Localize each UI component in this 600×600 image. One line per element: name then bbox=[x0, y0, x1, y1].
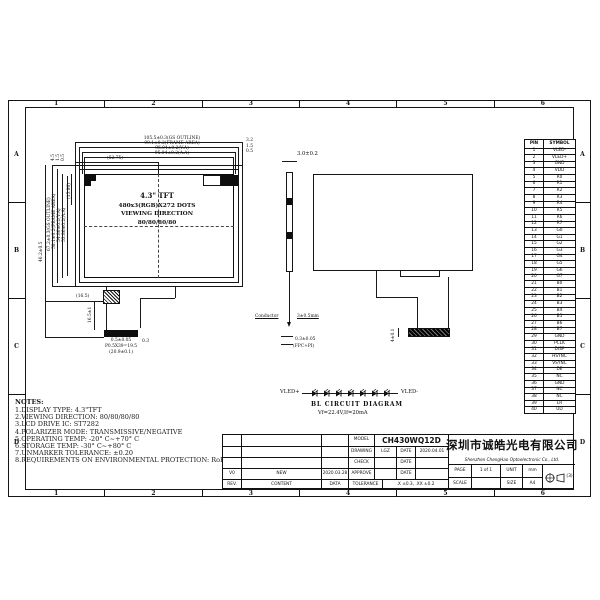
fpc-connector-front bbox=[104, 330, 138, 337]
rev-cell bbox=[241, 457, 321, 468]
pin-row: 6R1 bbox=[525, 181, 575, 188]
unit-label: UNIT bbox=[500, 464, 522, 477]
approve-date-value bbox=[415, 468, 448, 479]
side-view-outline bbox=[286, 172, 293, 272]
fpc-edge bbox=[376, 297, 417, 298]
check-value bbox=[374, 457, 396, 468]
witness-line bbox=[233, 157, 234, 174]
pin-symbol: VLED- bbox=[544, 149, 575, 155]
pin-row: 16G3 bbox=[525, 247, 575, 254]
dim-line bbox=[281, 344, 293, 345]
pin-row: 30PCLK bbox=[525, 340, 575, 347]
zone-label: A bbox=[8, 107, 25, 203]
pin-number: 17 bbox=[525, 255, 544, 261]
zone-numbers-top: 123456 bbox=[8, 100, 591, 107]
dim-total-height: 46.2±0.5 bbox=[40, 242, 44, 262]
pin-row: 9R4 bbox=[525, 201, 575, 208]
date-label: DATE bbox=[396, 446, 415, 457]
pin-row: 35NC bbox=[525, 373, 575, 380]
pin-row: 11R6 bbox=[525, 214, 575, 221]
scale-value bbox=[471, 477, 500, 490]
pin-row: 33VSYNC bbox=[525, 360, 575, 367]
pin-symbol: NC bbox=[544, 374, 575, 380]
zone-label: 6 bbox=[495, 100, 591, 107]
witness-line bbox=[84, 157, 85, 174]
rev-cell bbox=[321, 435, 348, 446]
fold-length-label: 3±0.5mm bbox=[297, 315, 319, 319]
dim-fpc-offset: (16.5) bbox=[76, 295, 89, 299]
tolerance-value: .X ±0.3, .XX ±0.2 bbox=[382, 479, 448, 490]
dim-center-offset: (52.75) bbox=[107, 157, 123, 161]
pin-row: 1VLED- bbox=[525, 148, 575, 155]
scale-label: SCALE bbox=[448, 477, 471, 490]
pin-row: 24B3 bbox=[525, 300, 575, 307]
zone-label: C bbox=[574, 299, 591, 395]
pin-row: 38NC bbox=[525, 393, 575, 400]
pin-number: 35 bbox=[525, 374, 544, 380]
led-icon bbox=[370, 389, 381, 399]
pin-symbol: B0 bbox=[544, 281, 575, 287]
pin-symbol: B5 bbox=[544, 315, 575, 321]
pin-number: 12 bbox=[525, 222, 544, 228]
pin-row: 29GND bbox=[525, 333, 575, 340]
pin-symbol: LR bbox=[544, 401, 575, 407]
pin-number: 18 bbox=[525, 261, 544, 267]
rev-cell bbox=[321, 457, 348, 468]
pin-row: 34DE bbox=[525, 367, 575, 374]
model-value: CH430WQ12D bbox=[374, 435, 448, 446]
dim-fpc-length: 16.5±1 bbox=[89, 307, 93, 323]
size-value: A4 bbox=[522, 477, 542, 490]
witness-line bbox=[75, 142, 76, 165]
witness-line bbox=[235, 152, 236, 174]
pin-row: 2VLED+ bbox=[525, 154, 575, 161]
pin-row: 17G4 bbox=[525, 254, 575, 261]
rev-cell bbox=[223, 457, 241, 468]
dim-aa-width: 95.04±0.2(A.A) bbox=[155, 152, 189, 156]
drawing-label: DRAWING bbox=[348, 446, 374, 457]
unit-value: mm bbox=[522, 464, 542, 477]
pin-row: 36GND bbox=[525, 380, 575, 387]
witness-line bbox=[158, 162, 159, 174]
pin-number: 13 bbox=[525, 228, 544, 234]
witness-line bbox=[82, 152, 83, 174]
pin-symbol: B3 bbox=[544, 301, 575, 307]
pin-number: 25 bbox=[525, 308, 544, 314]
data-header-label: DATA bbox=[321, 479, 348, 490]
rev-content: NEW bbox=[241, 468, 321, 479]
pin-number: 19 bbox=[525, 268, 544, 274]
pin-number: 6 bbox=[525, 182, 544, 188]
pin-row: 15G2 bbox=[525, 240, 575, 247]
zone-label: 1 bbox=[8, 490, 105, 497]
zone-label: 4 bbox=[300, 490, 397, 497]
third-angle-projection-icon bbox=[545, 472, 565, 484]
fpc-edge bbox=[448, 277, 449, 328]
pin-number: 39 bbox=[525, 401, 544, 407]
rev-cell bbox=[241, 435, 321, 446]
dim-thickness: 3.0±0.2 bbox=[297, 152, 318, 157]
pin-number: 24 bbox=[525, 301, 544, 307]
pin-symbol: R3 bbox=[544, 195, 575, 201]
pin-symbol: B7 bbox=[544, 328, 575, 334]
fpc-edge bbox=[417, 297, 418, 328]
dim-inner-offset: (15.80) bbox=[68, 183, 72, 199]
pin-symbol: R0 bbox=[544, 175, 575, 181]
pin-symbol: NC bbox=[544, 388, 575, 394]
dim-line bbox=[398, 328, 399, 337]
pin-number: 4 bbox=[525, 168, 544, 174]
rear-fpc-exit bbox=[400, 270, 440, 277]
zone-label: 1 bbox=[8, 100, 105, 107]
pin-row: 14G1 bbox=[525, 234, 575, 241]
rev-cell bbox=[223, 446, 241, 457]
pin-symbol: G5 bbox=[544, 261, 575, 267]
pin-symbol: GND bbox=[544, 381, 575, 387]
led-icon bbox=[310, 389, 321, 399]
pin-symbol: VLED+ bbox=[544, 155, 575, 161]
pin-symbol: G6 bbox=[544, 268, 575, 274]
rev-version: V0 bbox=[223, 468, 241, 479]
pin-row: 27B6 bbox=[525, 320, 575, 327]
zone-label: B bbox=[574, 203, 591, 299]
pin-row: 12R7 bbox=[525, 221, 575, 228]
pin-symbol: B6 bbox=[544, 321, 575, 327]
dim-line bbox=[45, 301, 106, 302]
drawing-value: LGZ bbox=[374, 446, 396, 457]
pin-number: 14 bbox=[525, 235, 544, 241]
dim-connector-height: 4±0.1 bbox=[392, 329, 396, 342]
side-fpc-line bbox=[289, 272, 290, 322]
side-tape-mark bbox=[287, 198, 292, 205]
pin-symbol: G2 bbox=[544, 241, 575, 247]
pin-row: 21B0 bbox=[525, 280, 575, 287]
pin-symbol: R6 bbox=[544, 215, 575, 221]
led-icon bbox=[334, 389, 345, 399]
pin-row: 39LR bbox=[525, 400, 575, 407]
rev-cell bbox=[321, 446, 348, 457]
pin-symbol: B4 bbox=[544, 308, 575, 314]
led-icon bbox=[382, 389, 393, 399]
led-icon bbox=[358, 389, 369, 399]
pin-row: 3GND bbox=[525, 161, 575, 168]
dim-edge-gap-1: 3.2 bbox=[246, 139, 253, 143]
pin-symbol: R1 bbox=[544, 182, 575, 188]
dim-pin-pitch: P0.5X39=19.5 bbox=[105, 345, 137, 349]
pin-symbol: UD bbox=[544, 407, 575, 413]
pin-number: 3 bbox=[525, 162, 544, 168]
fpc-edge bbox=[175, 287, 176, 298]
pin-number: 7 bbox=[525, 188, 544, 194]
zone-label: 2 bbox=[105, 490, 202, 497]
model-label: MODEL bbox=[348, 435, 374, 446]
page-value: 1 of 1 bbox=[471, 464, 500, 477]
label-box-top-right bbox=[203, 175, 221, 186]
zone-label: 5 bbox=[397, 490, 494, 497]
pin-header: PIN bbox=[525, 140, 544, 148]
pin-number: 15 bbox=[525, 241, 544, 247]
driver-ic-block bbox=[103, 290, 120, 304]
pin-number: 21 bbox=[525, 281, 544, 287]
pin-symbol: R2 bbox=[544, 188, 575, 194]
pin-number: 20 bbox=[525, 275, 544, 281]
dim-connector-width: (20.9±0.1) bbox=[109, 351, 133, 355]
pin-row: 25B4 bbox=[525, 307, 575, 314]
corner-mark-top-right bbox=[221, 175, 238, 186]
zone-label: 5 bbox=[397, 100, 494, 107]
pin-symbol: PCLK bbox=[544, 341, 575, 347]
pin-number: 28 bbox=[525, 328, 544, 334]
pin-row: 22B1 bbox=[525, 287, 575, 294]
pin-symbol: VDD bbox=[544, 168, 575, 174]
pin-row: 4VDD bbox=[525, 167, 575, 174]
pin-symbol: GND bbox=[544, 334, 575, 340]
zone-label: A bbox=[574, 107, 591, 203]
notes-title: NOTES: bbox=[15, 399, 44, 406]
pin-number: 36 bbox=[525, 381, 544, 387]
tolerance-label: TOLERANCE bbox=[348, 479, 382, 490]
pin-row: 28B7 bbox=[525, 327, 575, 334]
pin-row: 18G5 bbox=[525, 260, 575, 267]
zone-numbers-bottom: 123456 bbox=[8, 490, 591, 497]
pin-number: 16 bbox=[525, 248, 544, 254]
pin-row: 19G6 bbox=[525, 267, 575, 274]
note-item: 8.REQUIREMENTS ON ENVIRONMENTAL PROTECTI… bbox=[15, 457, 230, 464]
witness-line bbox=[45, 337, 104, 338]
conductor-label: Conductor bbox=[255, 315, 278, 319]
rev-cell bbox=[241, 446, 321, 457]
pin-number: 1 bbox=[525, 149, 544, 155]
date-label: DATE bbox=[396, 457, 415, 468]
pin-row: 5R0 bbox=[525, 174, 575, 181]
title-block: V0 NEW 2020.03.28 REV. CONTENT DATA MODE… bbox=[222, 434, 574, 489]
pin-number: 9 bbox=[525, 202, 544, 208]
fpc-edge bbox=[140, 298, 141, 328]
pin-row: 23B2 bbox=[525, 294, 575, 301]
display-text-block: 4.3" TFT 480x3(RGB)X272 DOTS VIEWING DIR… bbox=[84, 191, 230, 228]
witness-line bbox=[238, 147, 239, 169]
side-tape-mark bbox=[287, 232, 292, 239]
pin-number: 29 bbox=[525, 334, 544, 340]
pin-number: 11 bbox=[525, 215, 544, 221]
dim-aa-height: 53.86±0.2(A.A) bbox=[63, 208, 67, 242]
pin-number: 31 bbox=[525, 348, 544, 354]
witness-line bbox=[242, 142, 243, 165]
pin-row: 32HSYNC bbox=[525, 353, 575, 360]
company-name-cn: 深圳市诚皓光电有限公司 bbox=[448, 435, 575, 457]
dim-line bbox=[94, 301, 95, 330]
fpc-note: (FPC+PI) bbox=[293, 345, 314, 349]
led-icon bbox=[346, 389, 357, 399]
dim-connector-thickness: 0.3 bbox=[142, 340, 149, 344]
symbol-header: SYMBOL bbox=[544, 140, 575, 148]
led-icon bbox=[322, 389, 333, 399]
pin-symbol: NC bbox=[544, 394, 575, 400]
dim-top-gap-3: 0.5 bbox=[62, 154, 66, 161]
vled-minus-label: VLED- bbox=[401, 390, 418, 395]
pin-symbol: G7 bbox=[544, 275, 575, 281]
pin-symbol: G4 bbox=[544, 255, 575, 261]
zone-label: 3 bbox=[203, 490, 300, 497]
zone-label: 4 bbox=[300, 100, 397, 107]
display-viewing-text: VIEWING DIRECTION bbox=[84, 210, 230, 219]
approve-value bbox=[374, 468, 396, 479]
pin-number: 30 bbox=[525, 341, 544, 347]
pin-symbol: R7 bbox=[544, 222, 575, 228]
pin-symbol: R4 bbox=[544, 202, 575, 208]
pin-symbol: R5 bbox=[544, 208, 575, 214]
pin-table-header: PIN SYMBOL bbox=[525, 140, 575, 148]
fpc-edge bbox=[140, 298, 175, 299]
pin-row: 20G7 bbox=[525, 274, 575, 281]
dim-fpc-thickness: 0.3±0.05 bbox=[295, 338, 315, 342]
pin-number: 8 bbox=[525, 195, 544, 201]
fpc-connector-rear bbox=[408, 328, 450, 337]
check-date-value bbox=[415, 457, 448, 468]
rev-cell bbox=[223, 435, 241, 446]
pin-number: 22 bbox=[525, 288, 544, 294]
pin-row: 8R3 bbox=[525, 194, 575, 201]
pin-number: 27 bbox=[525, 321, 544, 327]
dim-line bbox=[75, 162, 158, 163]
rev-date: 2020.03.28 bbox=[321, 468, 348, 479]
drawing-date-value: 2020.04.01 bbox=[415, 446, 448, 457]
witness-line bbox=[79, 147, 80, 169]
pin-row: 7R2 bbox=[525, 187, 575, 194]
zone-label: 6 bbox=[495, 490, 591, 497]
display-size-text: 4.3" TFT bbox=[84, 191, 230, 202]
pin-row: 10R5 bbox=[525, 207, 575, 214]
zone-letters-right: ABCD bbox=[574, 107, 591, 490]
pin-number: 5 bbox=[525, 175, 544, 181]
dim-line bbox=[281, 336, 293, 337]
pin-number: 33 bbox=[525, 361, 544, 367]
pin-symbol: B1 bbox=[544, 288, 575, 294]
pin-symbol: B2 bbox=[544, 295, 575, 301]
note-item: 3.LCD DRIVE IC: ST7282 bbox=[15, 421, 99, 428]
approve-label: APPROVE bbox=[348, 468, 374, 479]
page-label: PAGE bbox=[448, 464, 471, 477]
pin-symbol: G1 bbox=[544, 235, 575, 241]
company-name-en: Shenzhen ChengHao Optoelectronic Co., Lt… bbox=[448, 457, 575, 464]
vled-plus-label: VLED+ bbox=[280, 390, 299, 395]
date-label: DATE bbox=[396, 468, 415, 479]
pin-number: 38 bbox=[525, 394, 544, 400]
pin-symbol: HSYNC bbox=[544, 354, 575, 360]
pin-number: 40 bbox=[525, 407, 544, 413]
content-header-label: CONTENT bbox=[241, 479, 321, 490]
dim-line bbox=[45, 165, 46, 337]
witness-line bbox=[52, 165, 75, 166]
check-label: CHECK bbox=[348, 457, 374, 468]
pin-number: 26 bbox=[525, 315, 544, 321]
pin-row: 13G0 bbox=[525, 227, 575, 234]
engineering-drawing-sheet: 123456 123456 ABCD ABCD 4.3" TFT 480x3(R… bbox=[0, 0, 600, 600]
bl-circuit-subtitle: Vf=22.4V,If=20mA bbox=[318, 411, 368, 416]
zone-label: 3 bbox=[203, 100, 300, 107]
pin-table-body: 1VLED-2VLED+3GND4VDD5R06R17R28R39R410R51… bbox=[525, 148, 575, 414]
pin-row: 31DISP bbox=[525, 347, 575, 354]
zone-label: C bbox=[8, 299, 25, 395]
pin-row: 26B5 bbox=[525, 314, 575, 321]
pin-row: 37NC bbox=[525, 387, 575, 394]
zone-label: B bbox=[8, 203, 25, 299]
pin-symbol: G3 bbox=[544, 248, 575, 254]
dim-line bbox=[282, 161, 297, 162]
rear-view-outline bbox=[313, 174, 473, 271]
pin-table: PIN SYMBOL 1VLED-2VLED+3GND4VDD5R06R17R2… bbox=[524, 139, 576, 414]
size-label: SIZE bbox=[500, 477, 522, 490]
pin-number: 34 bbox=[525, 368, 544, 374]
pin-row: 40UD bbox=[525, 406, 575, 413]
pin-number: 37 bbox=[525, 388, 544, 394]
bl-circuit-title: BL CIRCUIT DIAGRAM bbox=[311, 402, 403, 408]
pin-symbol: DE bbox=[544, 368, 575, 374]
pin-symbol: DISP bbox=[544, 348, 575, 354]
projection-angle-label: (3) bbox=[566, 475, 572, 480]
dim-pin-width: 0.5±0.05 bbox=[111, 339, 131, 343]
display-angles-text: 80/80/80/80 bbox=[84, 219, 230, 228]
witness-line bbox=[52, 286, 75, 287]
zone-label: 2 bbox=[105, 100, 202, 107]
pin-symbol: G0 bbox=[544, 228, 575, 234]
corner-mark-top-left-2 bbox=[85, 181, 91, 186]
arrow-icon bbox=[287, 322, 291, 327]
rev-header-label: REV. bbox=[223, 479, 241, 490]
led-row bbox=[310, 389, 393, 399]
dim-edge-gap-3: 0.5 bbox=[246, 150, 253, 154]
pin-number: 10 bbox=[525, 208, 544, 214]
pin-symbol: GND bbox=[544, 162, 575, 168]
pin-number: 23 bbox=[525, 295, 544, 301]
fpc-edge bbox=[376, 271, 377, 297]
pin-number: 32 bbox=[525, 354, 544, 360]
projection-cell: (3) bbox=[542, 464, 575, 490]
pin-symbol: VSYNC bbox=[544, 361, 575, 367]
pin-number: 2 bbox=[525, 155, 544, 161]
display-resolution-text: 480x3(RGB)X272 DOTS bbox=[84, 202, 230, 211]
